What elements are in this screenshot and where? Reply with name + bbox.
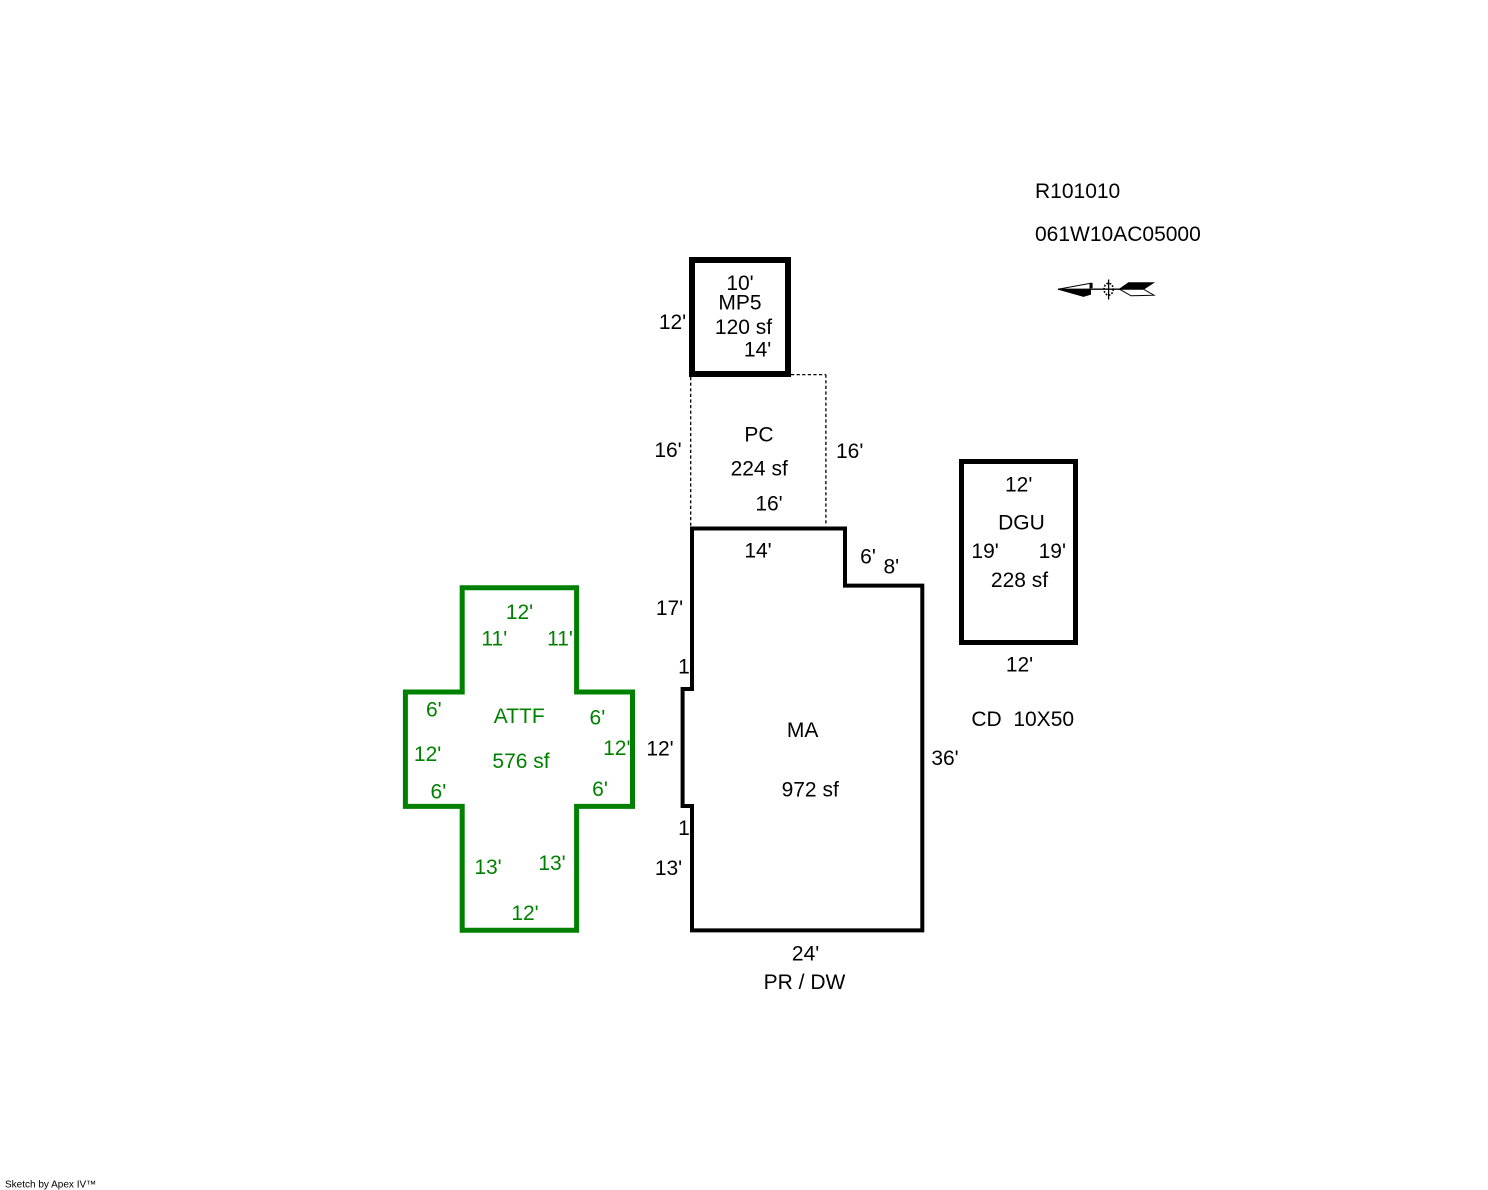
svg-text:1: 1	[678, 655, 690, 678]
svg-text:16': 16'	[654, 439, 681, 462]
svg-text:12': 12'	[506, 601, 533, 624]
svg-text:R101010: R101010	[1035, 180, 1120, 203]
svg-text:19': 19'	[971, 540, 998, 563]
svg-text:6': 6'	[590, 707, 606, 730]
svg-text:224 sf: 224 sf	[731, 458, 788, 481]
svg-text:PC: PC	[744, 424, 773, 447]
svg-text:6': 6'	[431, 781, 447, 804]
svg-text:12': 12'	[1005, 474, 1032, 497]
svg-text:12': 12'	[511, 902, 538, 925]
svg-text:36': 36'	[931, 747, 958, 770]
svg-text:13': 13'	[474, 856, 501, 879]
svg-text:228 sf: 228 sf	[991, 569, 1048, 592]
svg-text:CD 10X50: CD 10X50	[971, 708, 1074, 731]
svg-text:6': 6'	[592, 778, 608, 801]
svg-text:13': 13'	[655, 857, 682, 880]
svg-text:Sketch by Apex IV™: Sketch by Apex IV™	[5, 1180, 96, 1190]
svg-text:972 sf: 972 sf	[782, 779, 839, 802]
svg-text:12': 12'	[646, 738, 673, 761]
svg-text:8': 8'	[883, 556, 899, 579]
svg-text:6': 6'	[426, 699, 442, 722]
svg-text:12': 12'	[659, 311, 686, 334]
svg-text:14': 14'	[744, 540, 771, 563]
svg-text:14': 14'	[744, 339, 771, 362]
svg-text:11': 11'	[547, 627, 573, 650]
svg-text:MA: MA	[787, 719, 819, 742]
svg-text:12': 12'	[414, 743, 441, 766]
svg-text:120 sf: 120 sf	[715, 316, 772, 339]
svg-text:12': 12'	[1006, 654, 1033, 677]
svg-text:24': 24'	[792, 943, 819, 966]
svg-text:17': 17'	[656, 597, 683, 620]
svg-text:16': 16'	[836, 440, 863, 463]
svg-text:11': 11'	[481, 627, 507, 650]
svg-text:16': 16'	[755, 493, 782, 516]
svg-text:576 sf: 576 sf	[492, 750, 549, 773]
svg-text:PR / DW: PR / DW	[764, 971, 846, 994]
svg-text:1: 1	[678, 817, 690, 840]
svg-text:061W10AC05000: 061W10AC05000	[1035, 223, 1201, 246]
svg-text:6': 6'	[860, 546, 876, 569]
svg-text:DGU: DGU	[998, 512, 1045, 535]
svg-text:MP5: MP5	[718, 292, 761, 315]
svg-text:13': 13'	[538, 852, 565, 875]
svg-text:ATTF: ATTF	[494, 705, 545, 728]
svg-text:12': 12'	[603, 737, 630, 760]
svg-text:19': 19'	[1039, 540, 1066, 563]
